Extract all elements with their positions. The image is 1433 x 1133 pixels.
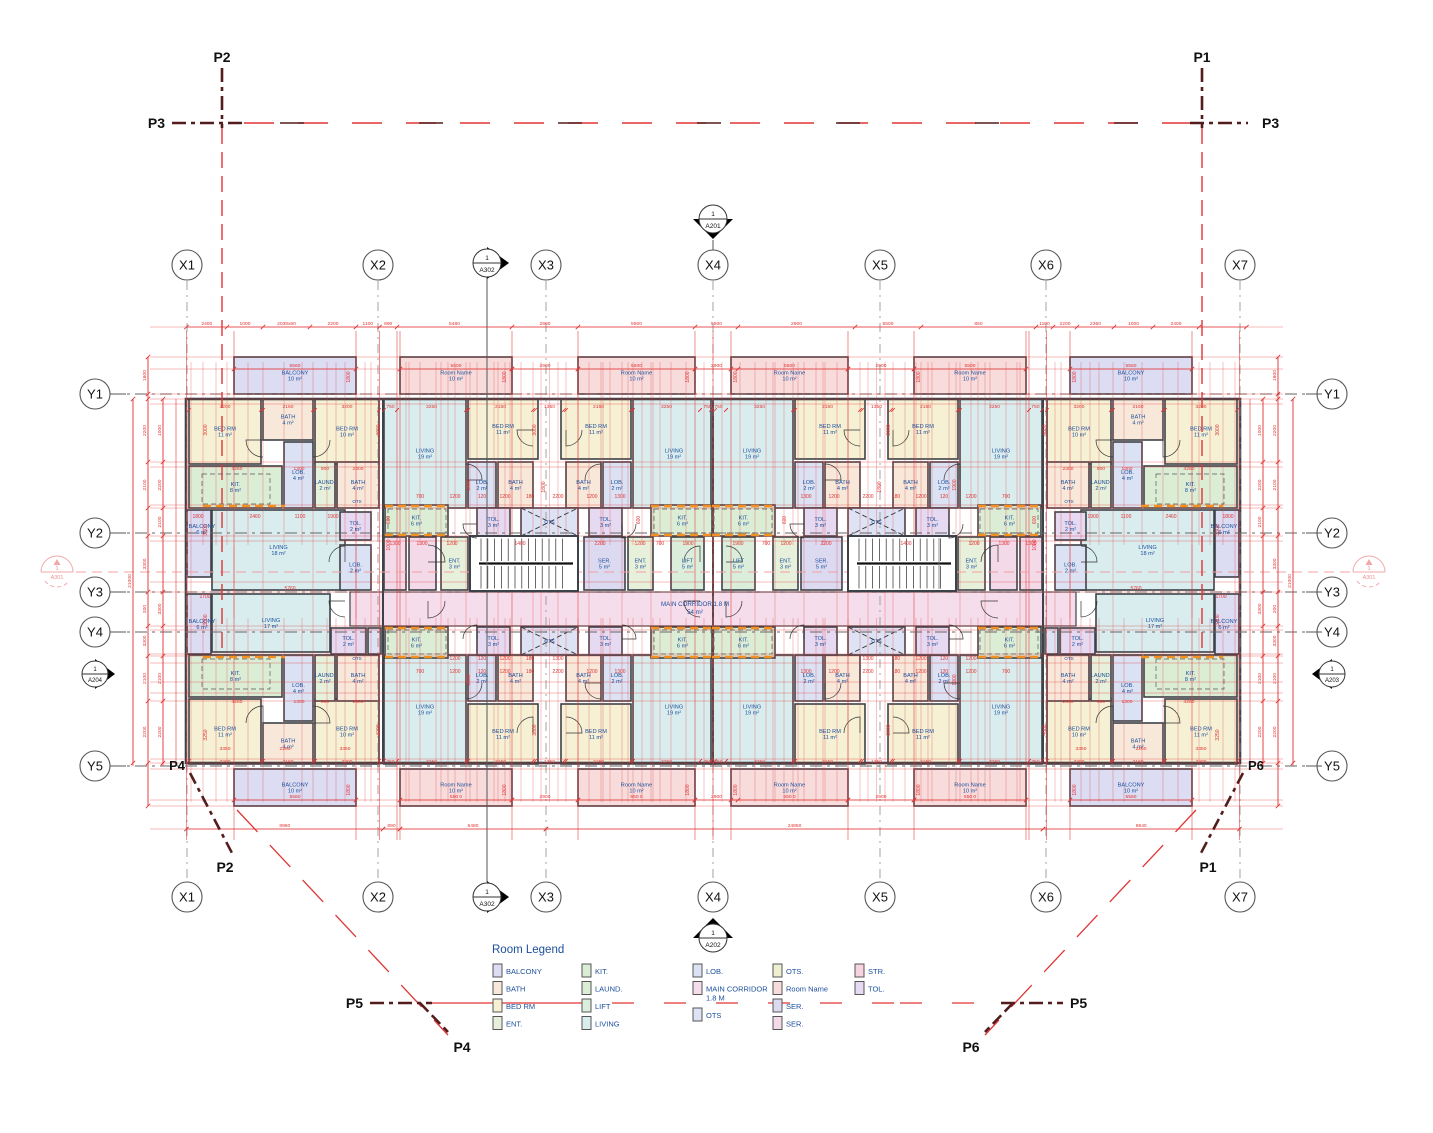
svg-text:10 m²: 10 m² <box>1124 788 1138 794</box>
svg-text:3250: 3250 <box>426 759 437 765</box>
svg-text:10 m²: 10 m² <box>629 376 643 382</box>
svg-text:1800: 1800 <box>192 514 203 520</box>
svg-text:1200: 1200 <box>915 669 926 675</box>
svg-text:11 m²: 11 m² <box>589 430 603 436</box>
svg-text:1300: 1300 <box>614 669 625 675</box>
svg-text:LOB.: LOB. <box>706 967 723 976</box>
svg-text:3200: 3200 <box>220 759 231 765</box>
svg-text:2200: 2200 <box>594 541 605 547</box>
svg-text:2150: 2150 <box>822 404 833 410</box>
svg-text:2 m²: 2 m² <box>319 679 330 685</box>
svg-text:P2: P2 <box>216 859 233 875</box>
svg-text:2 m²: 2 m² <box>1065 568 1076 574</box>
svg-text:900: 900 <box>321 466 329 472</box>
svg-text:700: 700 <box>1002 669 1011 675</box>
svg-text:1200: 1200 <box>634 541 645 547</box>
svg-text:1100: 1100 <box>1121 514 1132 520</box>
svg-text:2200: 2200 <box>552 669 563 675</box>
svg-text:6 m²: 6 m² <box>738 643 749 649</box>
svg-text:5500: 5500 <box>965 363 976 369</box>
svg-text:P3: P3 <box>148 115 165 131</box>
svg-text:P1: P1 <box>1193 49 1210 65</box>
svg-text:19 m²: 19 m² <box>994 710 1008 716</box>
svg-text:4000: 4000 <box>376 424 382 435</box>
svg-text:2 m²: 2 m² <box>803 679 814 685</box>
svg-text:4260: 4260 <box>1184 699 1195 705</box>
svg-text:1900: 1900 <box>327 514 338 520</box>
svg-text:1800: 1800 <box>346 371 352 382</box>
svg-text:4000: 4000 <box>376 724 382 735</box>
svg-text:1200: 1200 <box>968 541 979 547</box>
svg-text:1200: 1200 <box>915 494 926 500</box>
svg-text:3000: 3000 <box>532 724 538 735</box>
svg-text:X5: X5 <box>872 890 888 905</box>
svg-text:750: 750 <box>386 404 394 410</box>
svg-text:OTS: OTS <box>352 499 361 504</box>
svg-text:10 m²: 10 m² <box>288 376 302 382</box>
svg-text:X6: X6 <box>1038 890 1054 905</box>
svg-text:750: 750 <box>703 759 711 765</box>
svg-text:KIT.: KIT. <box>595 967 608 976</box>
svg-text:5560: 5560 <box>290 363 301 369</box>
svg-text:Y1: Y1 <box>1324 387 1340 402</box>
svg-text:BALCONY: BALCONY <box>506 967 542 976</box>
svg-text:11 m²: 11 m² <box>496 430 510 436</box>
svg-text:750: 750 <box>1031 759 1039 765</box>
svg-text:17 m²: 17 m² <box>1148 624 1162 630</box>
svg-text:Y2: Y2 <box>1324 526 1340 541</box>
svg-text:10 m²: 10 m² <box>963 788 977 794</box>
svg-text:6 m²: 6 m² <box>677 521 688 527</box>
svg-text:700: 700 <box>416 494 425 500</box>
svg-text:4000: 4000 <box>1042 724 1048 735</box>
svg-text:5 m²: 5 m² <box>682 564 693 570</box>
svg-text:3000: 3000 <box>1215 424 1221 435</box>
svg-text:1900: 1900 <box>952 479 958 490</box>
svg-text:1100: 1100 <box>295 514 306 520</box>
svg-text:3 m²: 3 m² <box>600 523 611 529</box>
svg-text:1200: 1200 <box>965 494 976 500</box>
svg-text:21000: 21000 <box>1287 574 1293 588</box>
svg-text:1000: 1000 <box>386 539 392 550</box>
svg-text:3200: 3200 <box>342 759 353 765</box>
svg-text:OTS.: OTS. <box>786 967 804 976</box>
svg-text:5 m²: 5 m² <box>816 564 827 570</box>
svg-text:750: 750 <box>703 404 711 410</box>
svg-text:2 m²: 2 m² <box>350 527 361 533</box>
svg-text:A301: A301 <box>1363 575 1376 581</box>
svg-text:2200: 2200 <box>1257 479 1263 490</box>
svg-text:1200: 1200 <box>828 494 839 500</box>
svg-text:1300: 1300 <box>614 494 625 500</box>
svg-text:750: 750 <box>386 759 394 765</box>
svg-text:3 m²: 3 m² <box>488 523 499 529</box>
svg-text:5500: 5500 <box>451 363 462 369</box>
svg-text:1200: 1200 <box>449 669 460 675</box>
svg-text:P5: P5 <box>1070 995 1087 1011</box>
svg-text:120: 120 <box>940 669 949 675</box>
svg-text:Y3: Y3 <box>87 585 103 600</box>
svg-text:X7: X7 <box>1232 890 1248 905</box>
svg-text:1900: 1900 <box>952 674 958 685</box>
svg-text:A204: A204 <box>88 678 103 684</box>
svg-text:2100: 2100 <box>142 479 148 490</box>
svg-text:Y4: Y4 <box>1324 625 1340 640</box>
svg-text:120: 120 <box>940 656 949 662</box>
svg-text:550 0: 550 0 <box>783 794 796 800</box>
svg-text:10 m²: 10 m² <box>782 376 796 382</box>
svg-text:2460: 2460 <box>249 514 260 520</box>
svg-text:4 m²: 4 m² <box>837 486 848 492</box>
svg-text:3300: 3300 <box>142 558 148 569</box>
svg-text:2100: 2100 <box>1272 673 1278 684</box>
svg-text:2160: 2160 <box>1133 759 1144 765</box>
svg-text:8 m²: 8 m² <box>230 488 241 494</box>
svg-text:180: 180 <box>526 669 535 675</box>
svg-text:2300: 2300 <box>353 466 364 472</box>
svg-text:10 m²: 10 m² <box>340 732 354 738</box>
svg-text:3 m²: 3 m² <box>966 564 977 570</box>
svg-text:1900: 1900 <box>1087 514 1098 520</box>
svg-text:19 m²: 19 m² <box>667 710 681 716</box>
svg-text:P1: P1 <box>1199 859 1216 875</box>
svg-text:5760: 5760 <box>284 586 295 592</box>
svg-text:4 m²: 4 m² <box>282 420 293 426</box>
svg-text:3350: 3350 <box>1076 746 1087 752</box>
svg-text:11 m²: 11 m² <box>218 432 232 438</box>
svg-text:Y3: Y3 <box>1324 585 1340 600</box>
svg-text:2100: 2100 <box>157 673 163 684</box>
svg-text:5760: 5760 <box>1130 586 1141 592</box>
svg-text:1100: 1100 <box>1039 321 1050 327</box>
svg-text:2 m²: 2 m² <box>343 642 354 648</box>
svg-text:X4: X4 <box>705 258 721 273</box>
svg-text:17 m²: 17 m² <box>264 624 278 630</box>
svg-text:4 m²: 4 m² <box>293 689 304 695</box>
svg-text:BATH: BATH <box>506 985 525 994</box>
svg-text:1200: 1200 <box>586 669 597 675</box>
svg-text:4000: 4000 <box>1042 424 1048 435</box>
svg-text:10 m²: 10 m² <box>1124 376 1138 382</box>
svg-text:5 m²: 5 m² <box>733 564 744 570</box>
svg-text:3350: 3350 <box>340 746 351 752</box>
svg-text:1300: 1300 <box>800 494 811 500</box>
svg-text:3200: 3200 <box>1196 404 1207 410</box>
svg-text:6 m²: 6 m² <box>677 643 688 649</box>
svg-text:A302: A302 <box>479 901 495 908</box>
svg-text:10 m²: 10 m² <box>449 788 463 794</box>
svg-text:1800: 1800 <box>1222 514 1233 520</box>
svg-text:P5: P5 <box>346 995 363 1011</box>
svg-text:11 m²: 11 m² <box>916 735 930 741</box>
svg-text:1: 1 <box>55 566 58 572</box>
svg-text:1800: 1800 <box>685 784 691 795</box>
svg-text:1800: 1800 <box>1272 370 1278 381</box>
svg-text:850: 850 <box>974 321 982 327</box>
svg-text:200: 200 <box>1272 605 1278 613</box>
svg-text:2200: 2200 <box>328 321 339 327</box>
svg-text:1000: 1000 <box>1128 321 1139 327</box>
svg-text:2360: 2360 <box>1090 321 1101 327</box>
svg-text:OTS: OTS <box>352 656 361 661</box>
svg-text:1200: 1200 <box>499 669 510 675</box>
svg-text:600: 600 <box>782 516 788 525</box>
svg-text:P4: P4 <box>453 1039 470 1055</box>
svg-text:Y1: Y1 <box>87 387 103 402</box>
svg-text:2 m²: 2 m² <box>938 679 949 685</box>
svg-text:2150: 2150 <box>495 404 506 410</box>
svg-text:3250: 3250 <box>426 404 437 410</box>
svg-text:5560: 5560 <box>1126 363 1137 369</box>
svg-text:2400: 2400 <box>201 321 212 327</box>
svg-text:Y5: Y5 <box>87 759 103 774</box>
svg-text:2900: 2900 <box>540 363 551 369</box>
svg-text:180: 180 <box>526 656 535 662</box>
svg-text:STR.: STR. <box>868 967 885 976</box>
svg-text:3300: 3300 <box>142 635 148 646</box>
svg-text:1700: 1700 <box>199 594 210 600</box>
svg-text:3350: 3350 <box>220 746 231 752</box>
svg-text:1800: 1800 <box>541 481 547 492</box>
svg-text:11 m²: 11 m² <box>1194 432 1208 438</box>
svg-text:2900: 2900 <box>540 321 551 327</box>
svg-text:8 m²: 8 m² <box>1185 677 1196 683</box>
svg-text:X5: X5 <box>872 258 888 273</box>
svg-text:24850: 24850 <box>788 823 802 829</box>
svg-text:2 m²: 2 m² <box>476 679 487 685</box>
svg-text:1350: 1350 <box>544 759 555 765</box>
svg-text:X1: X1 <box>179 890 195 905</box>
svg-text:600: 600 <box>1032 516 1038 525</box>
svg-text:1300: 1300 <box>800 669 811 675</box>
svg-text:3 m²: 3 m² <box>449 564 460 570</box>
svg-text:3 m²: 3 m² <box>815 642 826 648</box>
svg-text:4 m²: 4 m² <box>1122 689 1133 695</box>
svg-text:1350: 1350 <box>871 759 882 765</box>
svg-text:Room Legend: Room Legend <box>492 944 564 956</box>
svg-text:2100: 2100 <box>157 516 163 527</box>
svg-text:1900: 1900 <box>466 674 472 685</box>
svg-text:3350: 3350 <box>1196 746 1207 752</box>
svg-text:2300: 2300 <box>353 699 364 705</box>
svg-text:6 m²: 6 m² <box>1004 521 1015 527</box>
svg-text:2 m²: 2 m² <box>611 486 622 492</box>
svg-text:1100: 1100 <box>363 321 374 327</box>
svg-text:3 m²: 3 m² <box>927 642 938 648</box>
svg-text:X1: X1 <box>179 258 195 273</box>
svg-text:1350: 1350 <box>544 404 555 410</box>
svg-text:6 m²: 6 m² <box>411 521 422 527</box>
svg-text:1300: 1300 <box>862 656 873 662</box>
svg-text:4 m²: 4 m² <box>1062 486 1073 492</box>
svg-text:19 m²: 19 m² <box>994 454 1008 460</box>
svg-text:120: 120 <box>478 494 487 500</box>
svg-text:200: 200 <box>142 605 148 613</box>
svg-text:Y2: Y2 <box>87 526 103 541</box>
svg-text:3250: 3250 <box>989 404 1000 410</box>
svg-text:5560: 5560 <box>290 794 301 800</box>
svg-text:A203: A203 <box>1325 678 1340 684</box>
svg-text:1800: 1800 <box>916 784 922 795</box>
svg-text:X3: X3 <box>538 258 554 273</box>
svg-text:3250: 3250 <box>661 404 672 410</box>
svg-text:2900: 2900 <box>711 363 722 369</box>
svg-text:Room Name: Room Name <box>786 985 828 994</box>
svg-text:OTS: OTS <box>871 639 882 645</box>
svg-text:4 m²: 4 m² <box>578 486 589 492</box>
svg-text:Y4: Y4 <box>87 625 103 640</box>
svg-text:6 m²: 6 m² <box>738 521 749 527</box>
svg-text:2 m²: 2 m² <box>1095 679 1106 685</box>
svg-text:10 m²: 10 m² <box>629 788 643 794</box>
svg-text:1800: 1800 <box>142 370 148 381</box>
svg-text:2900: 2900 <box>791 321 802 327</box>
svg-text:21000: 21000 <box>127 574 133 588</box>
svg-text:180: 180 <box>892 669 901 675</box>
svg-text:1200: 1200 <box>449 494 460 500</box>
svg-text:P6: P6 <box>1248 758 1264 773</box>
svg-text:4 m²: 4 m² <box>1122 476 1133 482</box>
svg-text:P3: P3 <box>1262 115 1279 131</box>
svg-text:11 m²: 11 m² <box>823 430 837 436</box>
svg-text:2200: 2200 <box>862 669 873 675</box>
svg-text:2 m²: 2 m² <box>1072 642 1083 648</box>
svg-text:A301: A301 <box>51 575 64 581</box>
svg-text:10 m²: 10 m² <box>963 376 977 382</box>
svg-text:2 m²: 2 m² <box>319 486 330 492</box>
svg-text:1300: 1300 <box>416 541 427 547</box>
svg-text:3200: 3200 <box>1196 759 1207 765</box>
svg-text:700: 700 <box>762 541 771 547</box>
svg-text:10 m²: 10 m² <box>340 432 354 438</box>
svg-text:3 m²: 3 m² <box>815 523 826 529</box>
svg-text:8 m²: 8 m² <box>230 677 241 683</box>
svg-text:4 m²: 4 m² <box>352 679 363 685</box>
svg-text:3250: 3250 <box>754 404 765 410</box>
svg-text:9640: 9640 <box>1136 823 1147 829</box>
svg-text:2460: 2460 <box>1165 514 1176 520</box>
svg-text:18 m²: 18 m² <box>271 551 285 557</box>
svg-text:2200: 2200 <box>1272 726 1278 737</box>
svg-text:10 m²: 10 m² <box>1072 732 1086 738</box>
svg-text:4 m²: 4 m² <box>578 679 589 685</box>
svg-text:3 m²: 3 m² <box>635 564 646 570</box>
svg-text:1800: 1800 <box>502 371 508 382</box>
svg-text:1900: 1900 <box>466 479 472 490</box>
svg-text:3250: 3250 <box>754 759 765 765</box>
svg-text:1800: 1800 <box>1072 784 1078 795</box>
svg-text:19 m²: 19 m² <box>667 454 681 460</box>
svg-text:5500: 5500 <box>711 321 722 327</box>
svg-text:2 m²: 2 m² <box>1065 527 1076 533</box>
svg-text:3200: 3200 <box>1074 404 1085 410</box>
svg-text:P6: P6 <box>962 1039 979 1055</box>
svg-text:1: 1 <box>711 211 715 218</box>
svg-text:2100: 2100 <box>1257 673 1263 684</box>
svg-text:2200: 2200 <box>1257 726 1263 737</box>
svg-text:4 m²: 4 m² <box>352 486 363 492</box>
svg-text:3300: 3300 <box>203 524 209 535</box>
svg-text:1000: 1000 <box>1032 539 1038 550</box>
svg-text:X2: X2 <box>370 890 386 905</box>
svg-text:2900: 2900 <box>876 794 887 800</box>
svg-text:550 0: 550 0 <box>964 794 977 800</box>
svg-text:OTS: OTS <box>1064 499 1073 504</box>
svg-text:2150: 2150 <box>822 759 833 765</box>
svg-text:1700: 1700 <box>1215 594 1226 600</box>
svg-text:1300: 1300 <box>294 466 305 472</box>
svg-text:2038x60: 2038x60 <box>277 321 296 327</box>
svg-text:5 m²: 5 m² <box>599 564 610 570</box>
svg-text:700: 700 <box>1002 494 1011 500</box>
svg-text:5480: 5480 <box>449 321 460 327</box>
svg-text:LIVING: LIVING <box>595 1020 620 1029</box>
svg-text:2200: 2200 <box>862 494 873 500</box>
svg-text:2160: 2160 <box>1133 404 1144 410</box>
svg-text:OTS: OTS <box>706 1011 721 1020</box>
svg-text:2200: 2200 <box>142 726 148 737</box>
svg-text:2200: 2200 <box>157 726 163 737</box>
svg-text:3200: 3200 <box>342 404 353 410</box>
svg-text:10 m²: 10 m² <box>449 376 463 382</box>
svg-text:SER.: SER. <box>786 1002 804 1011</box>
svg-text:X2: X2 <box>370 258 386 273</box>
svg-text:1: 1 <box>485 255 489 262</box>
svg-text:2400: 2400 <box>1171 321 1182 327</box>
svg-text:2150: 2150 <box>593 404 604 410</box>
svg-text:X4: X4 <box>705 890 721 905</box>
svg-text:1400: 1400 <box>900 541 911 547</box>
svg-text:1200: 1200 <box>586 494 597 500</box>
svg-text:4 m²: 4 m² <box>510 486 521 492</box>
svg-text:4260: 4260 <box>232 699 243 705</box>
svg-text:A201: A201 <box>705 223 721 230</box>
svg-text:2 m²: 2 m² <box>803 486 814 492</box>
svg-text:10 m²: 10 m² <box>288 788 302 794</box>
svg-text:3250: 3250 <box>1215 729 1221 740</box>
svg-text:1200: 1200 <box>446 541 457 547</box>
svg-text:2 m²: 2 m² <box>938 486 949 492</box>
svg-text:1900: 1900 <box>682 541 693 547</box>
svg-text:A302: A302 <box>479 267 495 274</box>
svg-text:1400: 1400 <box>514 541 525 547</box>
svg-text:120: 120 <box>940 494 949 500</box>
svg-text:8960: 8960 <box>279 823 290 829</box>
svg-text:900: 900 <box>321 699 329 705</box>
svg-text:2160: 2160 <box>283 404 294 410</box>
svg-text:ENT.: ENT. <box>506 1020 522 1029</box>
svg-text:LIFT: LIFT <box>595 1002 611 1011</box>
svg-text:1350: 1350 <box>871 404 882 410</box>
svg-text:SER.: SER. <box>786 1020 804 1029</box>
svg-text:3000: 3000 <box>886 724 892 735</box>
svg-text:180: 180 <box>892 494 901 500</box>
svg-text:2900: 2900 <box>876 363 887 369</box>
svg-text:1200: 1200 <box>499 656 510 662</box>
svg-text:1000: 1000 <box>1257 425 1263 436</box>
svg-text:X6: X6 <box>1038 258 1054 273</box>
svg-text:890: 890 <box>384 321 392 327</box>
svg-text:4 m²: 4 m² <box>905 486 916 492</box>
svg-text:3300: 3300 <box>1215 524 1221 535</box>
svg-text:1800: 1800 <box>733 371 739 382</box>
svg-text:LAUND.: LAUND. <box>595 985 623 994</box>
svg-text:600: 600 <box>636 516 642 525</box>
svg-text:Y5: Y5 <box>1324 759 1340 774</box>
svg-text:4 m²: 4 m² <box>837 679 848 685</box>
svg-text:OTS: OTS <box>871 520 882 526</box>
svg-text:4260: 4260 <box>1184 466 1195 472</box>
